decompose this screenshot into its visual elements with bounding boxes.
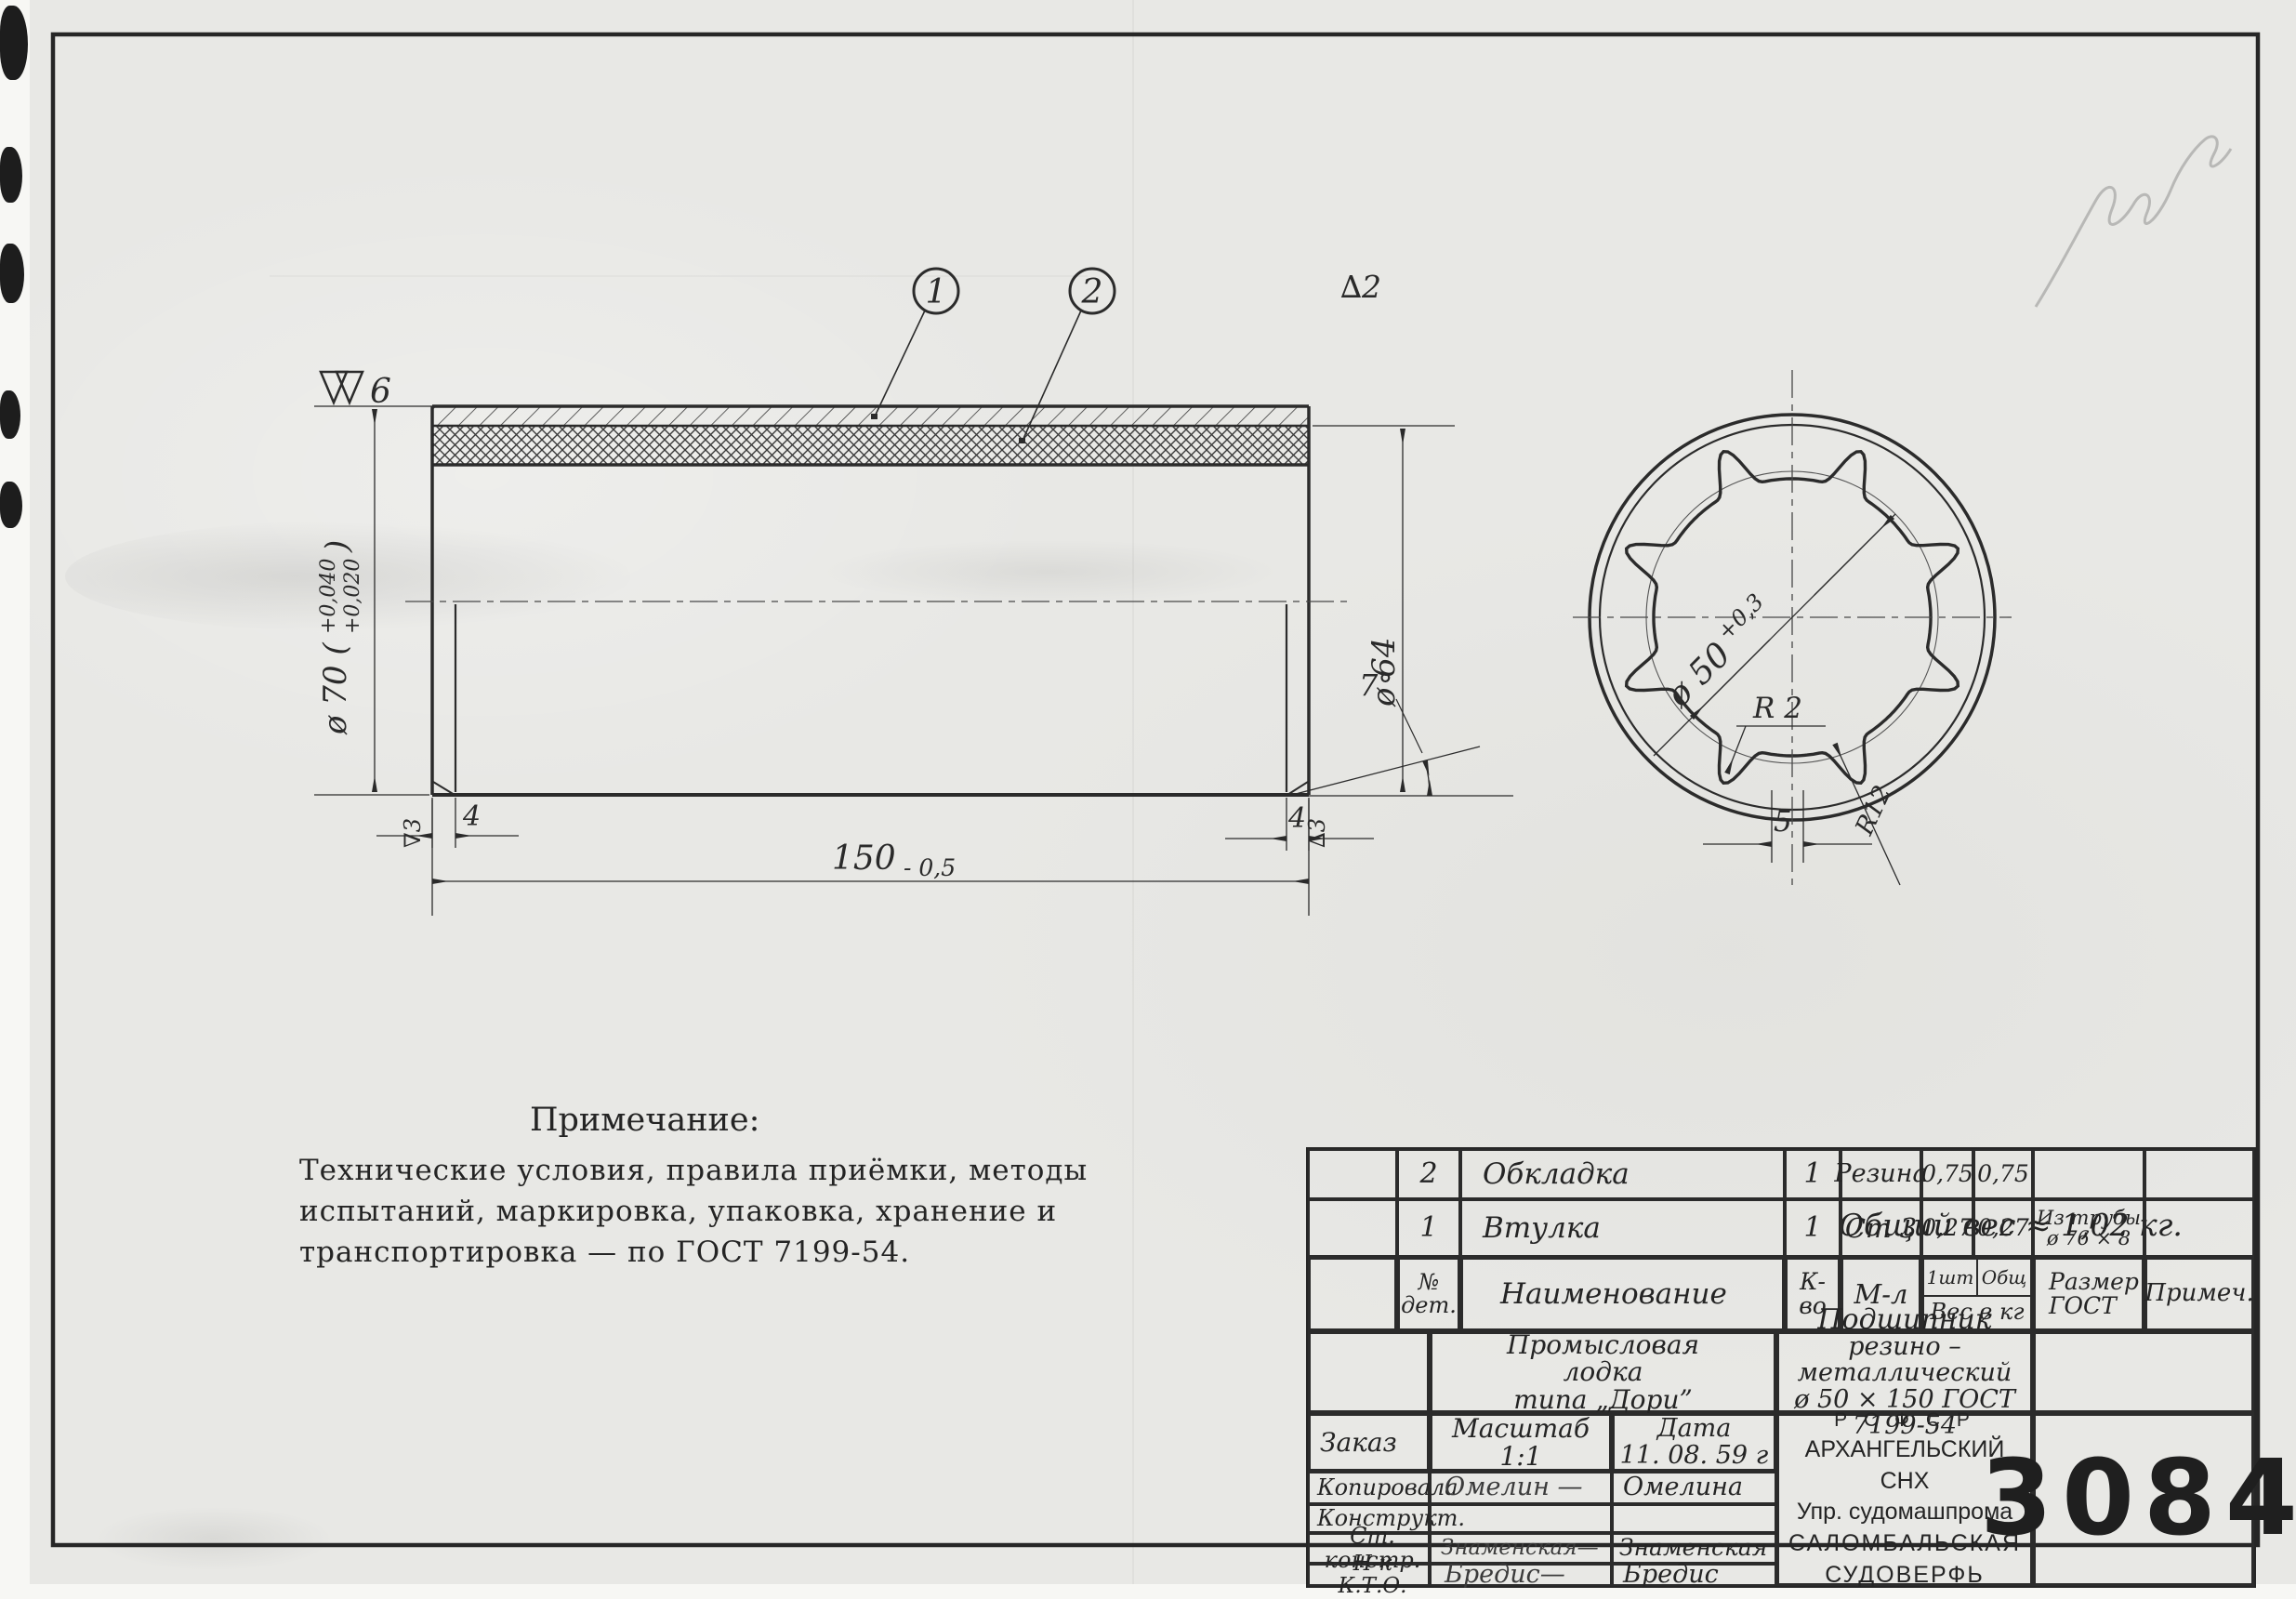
scale-cell: Масштаб 1:1: [1430, 1413, 1612, 1472]
product-line1: Промысловая: [1507, 1331, 1699, 1358]
sig-row-3-label: Н-к К.Т.О.: [1308, 1564, 1430, 1586]
parts-row2-no: 2: [1397, 1149, 1460, 1199]
parts-row1-size: Из трубы ø 76 × 8: [2033, 1199, 2144, 1257]
sig-row-0-signature: Омелин —: [1430, 1472, 1612, 1504]
product-cell: Промысловая лодка типа „Дори”: [1430, 1331, 1776, 1413]
dim-left-bevel: 4 ∇3: [376, 798, 519, 848]
left-bevel-finish: ∇3: [400, 818, 426, 848]
part-title-line1: Подшипник: [1817, 1305, 1991, 1335]
parts-row1-name: Втулка: [1460, 1199, 1785, 1257]
dia70-paren: ): [319, 540, 356, 553]
parts-row2-size: [2033, 1149, 2144, 1199]
dim-r2: R 2: [1727, 692, 1826, 773]
parts-row2-qty: 1: [1785, 1149, 1841, 1199]
header-size-line2: ГОСТ: [2049, 1294, 2117, 1318]
header-no-line1: №: [1419, 1271, 1440, 1294]
pencil-autograph: [2036, 137, 2231, 307]
sig-row-0-label: Копировала: [1308, 1472, 1430, 1504]
len150-label: 150: [832, 839, 896, 878]
parts-row1-size-line2: ø 76 × 8: [2047, 1228, 2131, 1249]
metal-shell-section: [432, 406, 1309, 426]
sig-row-1-name: [1612, 1504, 1776, 1533]
parts-row1-index-cell: [1308, 1199, 1397, 1257]
dia70-label: ø 70 (: [317, 642, 354, 735]
date-cell: Дата 11. 08. 59 г: [1612, 1413, 1776, 1472]
header-no-line2: дет.: [1401, 1294, 1457, 1317]
drawing-number-cell: 3084: [2033, 1413, 2254, 1586]
parts-row1-material: Ст 3: [1841, 1199, 1921, 1257]
product-spacer-cell: [1308, 1331, 1430, 1413]
notes-line-1: Технические условия, правила приёмки, ме…: [299, 1154, 1136, 1187]
notes-title: Примечание:: [530, 1102, 1136, 1139]
dia70-upper-tol: +0,040: [317, 559, 340, 634]
leader-dot: [871, 414, 877, 419]
header-index-cell: [1308, 1257, 1397, 1331]
callout-1: 1: [871, 269, 958, 419]
parts-row2-weight-each: 0,75: [1921, 1149, 1973, 1199]
sig-row-0-name: Омелина: [1612, 1472, 1776, 1504]
side-view: [405, 406, 1350, 795]
right-bevel-finish: ∆3: [1304, 818, 1330, 848]
header-weight-total: Общ: [1978, 1260, 2030, 1295]
top-right-spacer-cell: [2033, 1331, 2254, 1413]
part-title-cell: Подшипник резино – металлический ø 50 × …: [1776, 1331, 2033, 1413]
groove5-label: 5: [1774, 805, 1792, 839]
leader-dot: [1019, 438, 1025, 443]
sig-row-3-signature: Бредис—: [1430, 1564, 1612, 1586]
header-name: Наименование: [1460, 1257, 1785, 1331]
r2-label: R 2: [1752, 692, 1802, 725]
header-no: № дет.: [1397, 1257, 1460, 1331]
parts-row1-qty: 1: [1785, 1199, 1841, 1257]
sig-row-3-name: Бредис: [1612, 1564, 1776, 1586]
org-line5: СУДОВЕРФЬ: [1825, 1560, 1985, 1592]
sig-row-1-signature: [1430, 1504, 1612, 1533]
scale-label: Масштаб: [1452, 1415, 1590, 1442]
parts-row2-weight-total: 0,75: [1973, 1149, 2033, 1199]
dim-dia64: ∆2 ø 64: [1313, 269, 1455, 792]
scanned-blueprint-sheet: { "sheet": { "drawing_number": "3084", "…: [0, 0, 2296, 1599]
parts-row1-weight-total: 0,27: [1973, 1199, 2033, 1257]
scale-value: 1:1: [1499, 1443, 1541, 1470]
date-label: Дата: [1657, 1416, 1732, 1442]
parts-row1-no: 1: [1397, 1199, 1460, 1257]
dia50-label: ø 50: [1659, 636, 1739, 716]
parts-row1-note: [2144, 1199, 2254, 1257]
order-cell: Заказ: [1308, 1413, 1430, 1472]
notes-line-2: испытаний, маркировка, упаковка, хранени…: [299, 1195, 1136, 1228]
len150-tol: - 0,5: [904, 854, 956, 881]
bore-finish-delta2: ∆2: [1340, 269, 1381, 305]
angle-label: 7°: [1359, 667, 1392, 703]
parts-row2-name: Обкладка: [1460, 1149, 1785, 1199]
drawing-number: 3084: [1980, 1445, 2296, 1554]
product-line2: лодка: [1564, 1358, 1643, 1385]
part-title-line2: резино – металлический: [1779, 1334, 2030, 1387]
product-line3: типа „Дори”: [1513, 1386, 1693, 1413]
date-value: 11. 08. 59 г: [1620, 1443, 1769, 1469]
dim-len150: 150 - 0,5: [432, 799, 1309, 916]
header-weight-each: 1шт: [1924, 1260, 1978, 1295]
title-block: 2 Обкладка 1 Резина 0,75 0,75 1 Втулка 1…: [1308, 1149, 2254, 1586]
header-note: Примеч.: [2144, 1257, 2254, 1331]
end-view: [1573, 370, 2012, 891]
left-bevel-length: 4: [462, 800, 481, 833]
dia70-lower-tol: +0,020: [341, 559, 364, 634]
org-line1: Р С Ф С Р: [1834, 1407, 1975, 1434]
rubber-lining-section: [432, 426, 1309, 465]
callout-2-number: 2: [1081, 273, 1103, 311]
header-size-line1: Размер: [2049, 1270, 2139, 1294]
callout-1-number: 1: [926, 273, 947, 311]
notes-line-3: транспортировка — по ГОСТ 7199-54.: [299, 1236, 1136, 1269]
dim-right-bevel: 4 ∆3: [1225, 798, 1374, 851]
parts-row2-material: Резина: [1841, 1149, 1921, 1199]
surface-finish-value: 6: [370, 373, 391, 411]
parts-row2-note: [2144, 1149, 2254, 1199]
surface-finish-w6: 6: [314, 372, 432, 411]
parts-row1-size-line1: Из трубы: [2037, 1208, 2141, 1228]
parts-row1-weight-each: 0,27: [1921, 1199, 1973, 1257]
parts-row2-index-cell: [1308, 1149, 1397, 1199]
notes-block: Примечание: Технические условия, правила…: [299, 1102, 1136, 1276]
header-size: Размер ГОСТ: [2033, 1257, 2144, 1331]
